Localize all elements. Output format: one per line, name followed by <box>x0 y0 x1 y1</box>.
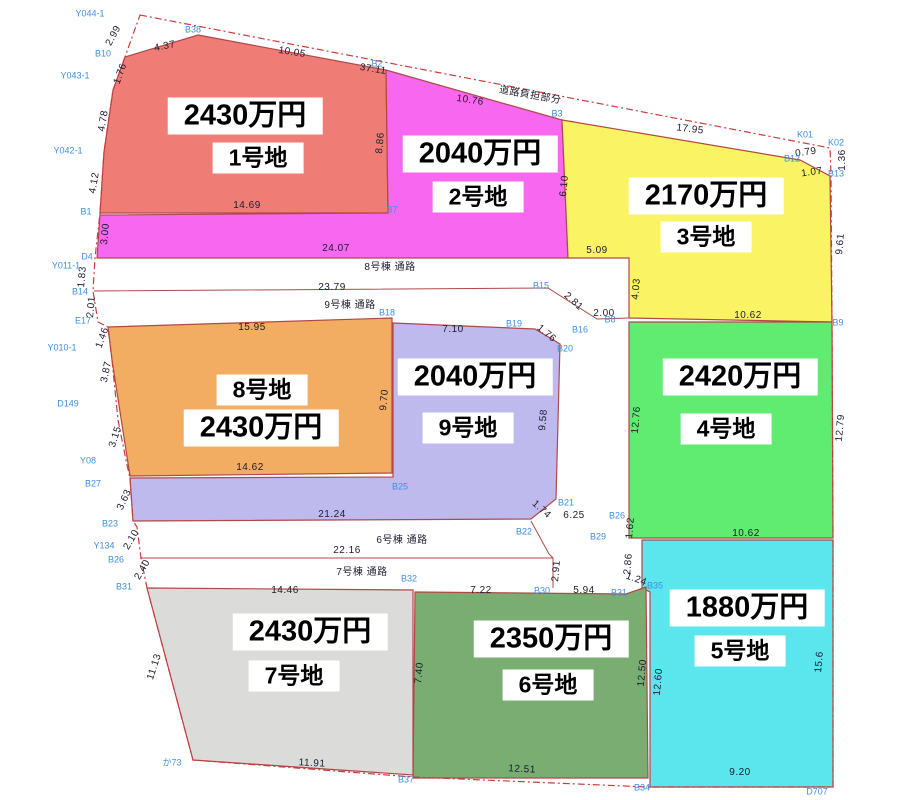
dimension-label: 道路負担部分 <box>498 86 562 107</box>
plot-1-price-label: 2430万円 <box>168 98 323 135</box>
dimension-label: 3.87 <box>100 360 114 383</box>
survey-point-label: B18 <box>379 309 395 318</box>
land-plot-map: 2.994.3710.0537.11道路負担部分10.7617.951.764.… <box>0 0 923 800</box>
survey-point-label: B23 <box>102 520 118 529</box>
dimension-label: 23.79 <box>318 283 346 293</box>
plot-4-name-label: 4号地 <box>681 414 772 445</box>
dimension-label: 22.16 <box>333 546 361 556</box>
dimension-label: 9.61 <box>835 233 847 255</box>
plot-7-price-label: 2430万円 <box>233 614 388 651</box>
dimension-label: 2.91 <box>551 560 563 582</box>
survey-point-label: B7 <box>386 206 397 215</box>
dimension-label: 1.74 <box>530 499 553 521</box>
dimension-label: 4.37 <box>153 40 176 54</box>
dimension-label: 17.95 <box>676 123 705 136</box>
dimension-label: 21.24 <box>318 510 346 520</box>
dimension-label: 14.69 <box>233 201 261 211</box>
dimension-label: 1.76 <box>113 62 130 86</box>
survey-point-label: か73 <box>162 759 181 768</box>
dimension-label: 2.40 <box>133 558 152 582</box>
survey-point-label: Y043-1 <box>60 72 89 81</box>
dimension-label: 9号棟 通路 <box>324 301 375 311</box>
dimension-label: 10.05 <box>278 46 307 60</box>
plot-5-name-label: 5号地 <box>695 636 786 667</box>
survey-point-label: B2 <box>371 60 382 69</box>
survey-point-label: K01 <box>797 131 813 140</box>
survey-point-label: Y08 <box>80 457 96 466</box>
survey-point-label: B27 <box>85 480 101 489</box>
plot-9-price-label: 2040万円 <box>398 359 553 396</box>
plot-8-name-label: 8号地 <box>217 375 308 406</box>
labels-layer: 2.994.3710.0537.11道路負担部分10.7617.951.764.… <box>0 0 923 800</box>
dimension-label: 12.50 <box>637 659 649 687</box>
survey-point-label: D149 <box>57 400 79 409</box>
dimension-label: 10.62 <box>734 311 762 321</box>
plot-3-name-label: 3号地 <box>661 222 752 253</box>
dimension-label: 7.22 <box>470 586 491 596</box>
survey-point-label: B13 <box>828 170 844 179</box>
dimension-label: 3.63 <box>116 488 134 512</box>
survey-point-label: B29 <box>590 533 606 542</box>
dimension-label: 12.76 <box>631 406 643 434</box>
dimension-label: 9.20 <box>729 768 750 778</box>
dimension-label: 14.46 <box>271 586 299 596</box>
survey-point-label: D707 <box>806 788 828 797</box>
survey-point-label: B35 <box>647 582 663 591</box>
survey-point-label: B25 <box>392 483 408 492</box>
dimension-label: 4.12 <box>88 172 102 195</box>
survey-point-label: B38 <box>185 26 201 35</box>
survey-point-label: E17 <box>75 317 91 326</box>
dimension-label: 6.25 <box>563 511 584 521</box>
dimension-label: 7号棟 通路 <box>336 568 387 578</box>
dimension-label: 8.86 <box>375 132 387 154</box>
dimension-label: 1.62 <box>625 517 637 539</box>
dimension-label: 2.81 <box>562 291 585 313</box>
dimension-label: 1.76 <box>535 323 558 344</box>
plot-6-price-label: 2350万円 <box>474 621 629 658</box>
dimension-label: 1.07 <box>801 167 824 180</box>
survey-point-label: Y134 <box>93 542 114 551</box>
survey-point-label: B32 <box>401 575 417 584</box>
dimension-label: 3.00 <box>100 223 112 245</box>
plot-4-price-label: 2420万円 <box>663 359 818 396</box>
dimension-label: 14.62 <box>236 463 264 473</box>
survey-point-label: B37 <box>398 776 414 785</box>
dimension-label: 2.86 <box>623 553 635 575</box>
survey-point-label: B8 <box>604 316 615 325</box>
plot-6-name-label: 6号地 <box>503 670 594 701</box>
survey-point-label: B20 <box>557 345 573 354</box>
plot-8-price-label: 2430万円 <box>184 410 339 447</box>
plot-7-name-label: 7号地 <box>249 661 340 692</box>
dimension-label: 15.95 <box>238 323 266 333</box>
dimension-label: 12.51 <box>508 764 536 775</box>
survey-point-label: B1 <box>80 208 91 217</box>
survey-point-label: B21 <box>558 499 574 508</box>
plot-1-name-label: 1号地 <box>213 143 304 174</box>
dimension-label: 12.79 <box>835 414 847 442</box>
survey-point-label: B15 <box>533 282 549 291</box>
survey-point-label: Y042-1 <box>53 147 82 156</box>
dimension-label: 11.13 <box>146 653 164 682</box>
survey-point-label: K02 <box>828 139 844 148</box>
survey-point-label: B10 <box>95 50 111 59</box>
plot-2-name-label: 2号地 <box>433 182 524 213</box>
plot-3-price-label: 2170万円 <box>629 178 784 215</box>
survey-point-label: B30 <box>534 587 550 596</box>
dimension-label: 2.99 <box>105 24 124 48</box>
survey-point-label: B22 <box>516 528 532 537</box>
survey-point-label: Y044-1 <box>75 10 104 19</box>
survey-point-label: D4 <box>81 253 93 262</box>
dimension-label: 3.15 <box>108 425 124 449</box>
dimension-label: 5.09 <box>586 246 607 256</box>
plot-9-name-label: 9号地 <box>423 413 514 444</box>
dimension-label: 5.94 <box>573 586 594 596</box>
survey-point-label: B14 <box>72 288 88 297</box>
dimension-label: 6号棟 通路 <box>376 536 427 546</box>
dimension-label: 7.10 <box>442 325 463 335</box>
survey-point-label: B3 <box>551 110 562 119</box>
plot-2-price-label: 2040万円 <box>403 136 558 173</box>
survey-point-label: B26 <box>108 556 124 565</box>
dimension-label: 2.10 <box>122 528 141 552</box>
dimension-label: 10.62 <box>732 529 760 539</box>
dimension-label: 4.78 <box>97 110 111 133</box>
dimension-label: 7.40 <box>414 662 426 684</box>
dimension-label: 6.10 <box>559 175 571 197</box>
dimension-label: 1.46 <box>95 326 112 350</box>
survey-point-label: Y011-1 <box>52 262 80 271</box>
survey-point-label: B9 <box>832 319 843 328</box>
dimension-label: 10.76 <box>456 94 485 108</box>
survey-point-label: B31 <box>611 589 627 598</box>
dimension-label: 1.36 <box>838 149 848 170</box>
survey-point-label: B26 <box>609 512 625 521</box>
dimension-label: 8号棟 通路 <box>364 263 415 273</box>
survey-point-label: Y010-1 <box>47 344 76 353</box>
survey-point-label: B31 <box>116 583 132 592</box>
plot-5-price-label: 1880万円 <box>670 590 825 627</box>
survey-point-label: B34 <box>634 784 650 793</box>
survey-point-label: B16 <box>572 326 588 335</box>
survey-point-label: B12 <box>784 155 800 164</box>
dimension-label: 24.07 <box>322 244 350 254</box>
dimension-label: 9.70 <box>379 389 391 411</box>
dimension-label: 12.60 <box>653 668 665 696</box>
dimension-label: 15.6 <box>814 651 826 673</box>
dimension-label: 9.58 <box>538 409 550 431</box>
survey-point-label: B19 <box>506 320 522 329</box>
dimension-label: 11.91 <box>298 758 325 769</box>
dimension-label: 4.03 <box>631 278 643 300</box>
